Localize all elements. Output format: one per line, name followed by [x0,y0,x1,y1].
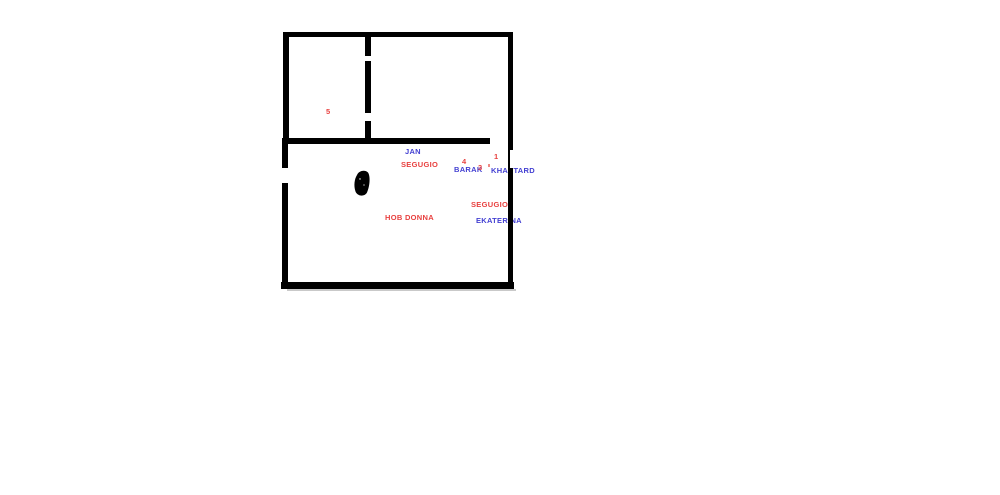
wall-left-mid [282,138,288,168]
segugio-lower-label: SEGUGIO [471,201,508,209]
wall-divider-mid [365,61,371,113]
number-3-label: 3 [478,164,482,172]
number-1-label: 1 [494,153,498,161]
wall-bottom [281,282,514,289]
room-number-5-label: 5 [326,108,330,116]
jan-label: JAN [405,148,421,156]
segugio-upper-label: SEGUGIO [401,161,438,169]
hob-donna-label: HOB DONNA [385,214,434,222]
wall-mid-horizontal [282,138,490,144]
bottom-wall-shadow [287,289,516,291]
wall-left-upper [283,32,289,140]
wall-top [283,32,513,37]
ink-blob-mark [352,169,372,199]
red-speck-mark [488,164,490,167]
floorplan-canvas: 5 JAN SEGUGIO 4 BARAK 3 1 KHASTARD SEGUG… [0,0,1000,495]
wall-left-lower [282,183,288,289]
wall-divider-top [365,36,371,56]
wall-right-door-notch [510,150,513,168]
ekaterina-label: EKATERINA [476,217,522,225]
